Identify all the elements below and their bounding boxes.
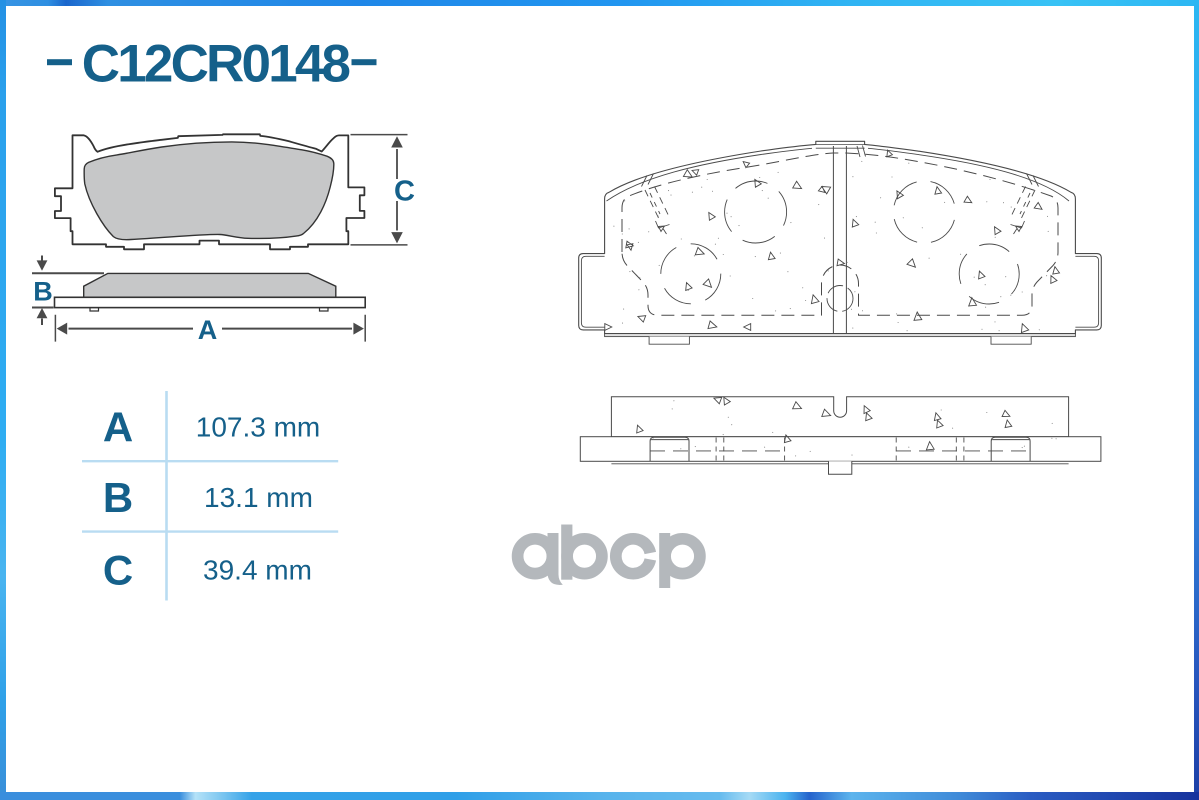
svg-text:13.1 mm: 13.1 mm [204,482,313,513]
svg-text:B: B [103,474,133,521]
svg-text:C12CR0148: C12CR0148 [82,35,350,94]
svg-text:39.4 mm: 39.4 mm [203,555,312,586]
svg-text:B: B [33,277,53,307]
svg-text:C: C [103,547,133,594]
svg-text:A: A [103,404,133,451]
svg-text:C: C [394,176,415,208]
svg-text:A: A [198,315,218,345]
svg-text:107.3 mm: 107.3 mm [196,412,321,443]
